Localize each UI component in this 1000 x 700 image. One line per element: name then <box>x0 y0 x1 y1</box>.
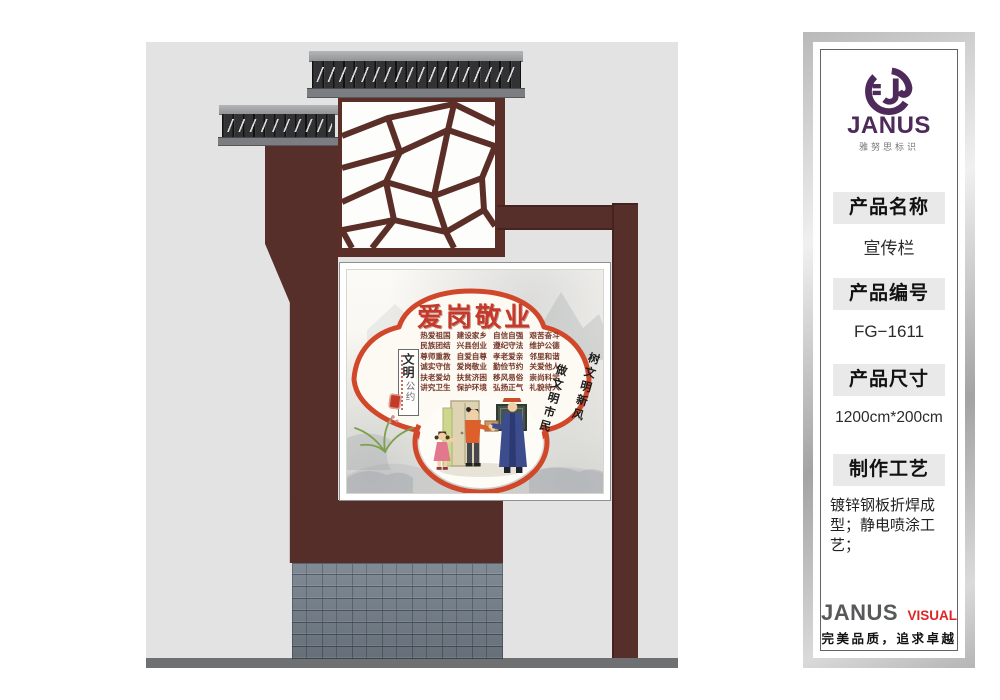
civic-phrase: 诚实守信 <box>420 363 450 371</box>
brick-base <box>292 563 503 659</box>
field-label-process: 制作工艺 <box>833 454 945 486</box>
spec-sidebar: JANUS 雅努思标识 产品名称 宣传栏 产品编号 FG−1611 产品尺寸 1… <box>803 32 975 668</box>
big-roof-tile-highlights <box>315 67 518 82</box>
small-roof-tile-highlights <box>225 119 332 132</box>
civic-phrase: 扶贫济困 <box>457 374 487 382</box>
footer-brand-name: JANUS <box>821 600 898 625</box>
field-label-product-size: 产品尺寸 <box>833 364 945 396</box>
ice-crack-pattern-svg <box>342 102 495 248</box>
footer-brand: JANUS VISUAL <box>821 600 957 626</box>
civic-phrase: 遵纪守法 <box>493 342 523 350</box>
civic-phrase: 民族团结 <box>420 342 450 350</box>
spec-sidebar-margin: JANUS 雅努思标识 产品名称 宣传栏 产品编号 FG−1611 产品尺寸 1… <box>813 42 965 658</box>
ground-bar <box>146 658 678 668</box>
civic-phrase: 移风易俗 <box>493 374 523 382</box>
right-pillar <box>612 203 638 658</box>
spec-sidebar-box: JANUS 雅努思标识 产品名称 宣传栏 产品编号 FG−1611 产品尺寸 1… <box>820 49 958 651</box>
big-roof-tiles <box>312 61 521 88</box>
civic-phrase: 尊师重教 <box>420 353 450 361</box>
field-value-product-number: FG−1611 <box>821 322 957 342</box>
civic-box-side-strip <box>401 355 403 410</box>
brand-wordmark: JANUS <box>821 112 957 140</box>
seal-icon <box>388 393 402 409</box>
product-sheet: 爱岗敬业 热爱祖国建设家乡自信自强艰苦奋斗民族团结兴县创业遵纪守法维护公德尊师重… <box>0 0 1000 700</box>
civic-phrase-grid: 热爱祖国建设家乡自信自强艰苦奋斗民族团结兴县创业遵纪守法维护公德尊师重教自爱自尊… <box>415 332 565 392</box>
civic-phrase: 爱岗敬业 <box>457 363 487 371</box>
footer-brand-suffix: VISUAL <box>908 608 958 623</box>
poster-frame: 爱岗敬业 热爱祖国建设家乡自信自强艰苦奋斗民族团结兴县创业遵纪守法维护公德尊师重… <box>339 262 611 501</box>
small-roof-tiles <box>222 114 335 137</box>
field-value-product-size: 1200cm*200cm <box>821 409 957 427</box>
civic-phrase: 孝老爱亲 <box>493 353 523 361</box>
field-value-process: 镀锌钢板折焊成型；静电喷涂工艺； <box>830 496 950 555</box>
footer-tagline: 完美品质，追求卓越 <box>821 628 957 647</box>
cabinet-body <box>292 500 503 563</box>
big-roof-eave <box>307 88 525 98</box>
civic-convention-box: 文明 公约 <box>398 349 419 416</box>
janus-logo-icon <box>862 64 916 118</box>
civic-phrase: 兴县创业 <box>457 342 487 350</box>
poster-artwork: 爱岗敬业 热爱祖国建设家乡自信自强艰苦奋斗民族团结兴县创业遵纪守法维护公德尊师重… <box>346 269 604 494</box>
civic-phrase: 艰苦奋斗 <box>529 332 559 340</box>
civic-phrase: 热爱祖国 <box>420 332 450 340</box>
civic-phrase: 弘扬正气 <box>493 384 523 392</box>
top-beam <box>497 205 612 230</box>
civic-box-subtitle: 公约 <box>402 381 416 402</box>
field-label-product-name: 产品名称 <box>833 192 945 224</box>
civic-phrase: 讲究卫生 <box>420 384 450 392</box>
civic-phrase: 保护环境 <box>457 384 487 392</box>
civic-phrase: 自爱自尊 <box>457 353 487 361</box>
field-value-product-name: 宣传栏 <box>821 234 957 259</box>
field-label-product-number: 产品编号 <box>833 278 945 310</box>
lattice-panel <box>338 95 505 257</box>
civic-phrase: 勤俭节约 <box>493 363 523 371</box>
poster-title: 爱岗敬业 <box>347 304 603 330</box>
civic-phrase: 自信自强 <box>493 332 523 340</box>
small-roof-eave <box>218 137 338 146</box>
brand-subtitle: 雅努思标识 <box>821 140 957 153</box>
civic-phrase: 扶老爱幼 <box>420 374 450 382</box>
civic-phrase: 建设家乡 <box>457 332 487 340</box>
